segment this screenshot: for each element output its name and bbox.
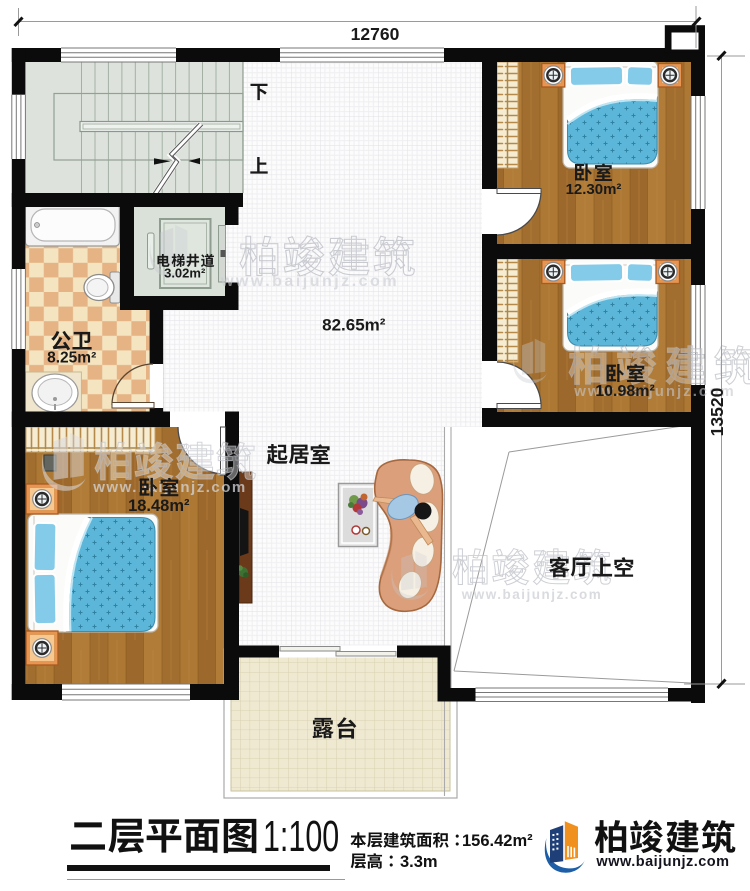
svg-text:www.baijunjz.com: www.baijunjz.com bbox=[595, 854, 729, 870]
svg-text:13520: 13520 bbox=[707, 387, 727, 436]
svg-text:www.baijunjz.com: www.baijunjz.com bbox=[461, 587, 603, 602]
svg-text:156.42m²: 156.42m² bbox=[462, 832, 533, 850]
svg-text:1:100: 1:100 bbox=[263, 812, 339, 861]
svg-text:3.3m: 3.3m bbox=[400, 853, 438, 871]
svg-text:18.48m²: 18.48m² bbox=[128, 497, 190, 515]
svg-text:3.02m²: 3.02m² bbox=[164, 266, 206, 281]
svg-text:12760: 12760 bbox=[351, 24, 400, 44]
svg-text:www.baijunjz.com: www.baijunjz.com bbox=[220, 273, 399, 290]
svg-text:82.65m²: 82.65m² bbox=[322, 316, 386, 335]
svg-text:8.25m²: 8.25m² bbox=[47, 350, 96, 367]
svg-text:10.98m²: 10.98m² bbox=[595, 383, 655, 400]
svg-text:12.30m²: 12.30m² bbox=[566, 181, 622, 198]
